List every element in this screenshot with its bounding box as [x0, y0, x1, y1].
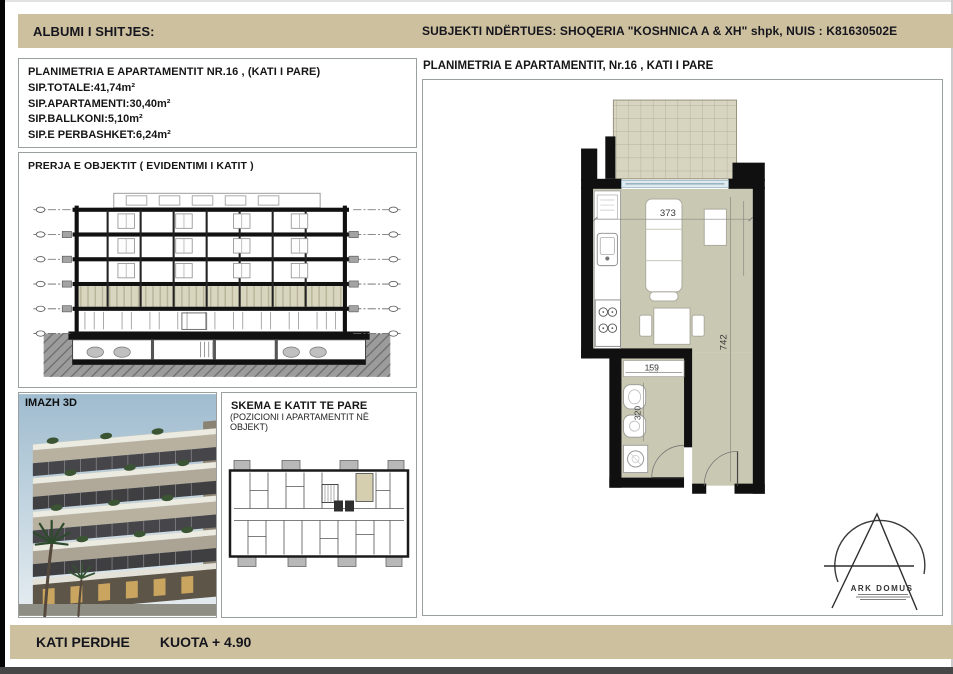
hall-floor	[692, 352, 753, 485]
building-section-title: PRERJA E OBJEKTIT ( EVIDENTIMI I KATIT )	[19, 153, 416, 175]
dim-bath-height-label: 320	[633, 406, 643, 421]
balcony	[613, 100, 736, 179]
page-edge-bottom	[0, 667, 953, 674]
render-3d-label: IMAZH 3D	[25, 397, 77, 409]
logo-underlines	[856, 595, 910, 600]
apartment-info-title: PLANIMETRIA E APARTAMENTIT NR.16 , (KATI…	[19, 59, 416, 81]
logo-text: ARK DOMUS	[851, 584, 914, 593]
kitchen-stove	[595, 300, 620, 346]
dim-width-label: 373	[660, 208, 676, 219]
schema-highlighted-apartment	[356, 474, 373, 502]
footer-elevation-label: KUOTA + 4.90	[160, 634, 251, 650]
foundation	[44, 331, 391, 376]
schema-elevator-2	[345, 501, 354, 512]
sip-perbashket: SIP.E PERBASHKET:6,24m²	[19, 128, 416, 144]
album-page: ALBUMI I SHITJES: SUBJEKTI NDËRTUES: SHO…	[0, 0, 953, 674]
footer-floor-label: KATI PERDHE	[36, 634, 130, 650]
sip-ballkoni: SIP.BALLKONI:5,10m²	[19, 112, 416, 128]
apartment-info-panel: PLANIMETRIA E APARTAMENTIT NR.16 , (KATI…	[18, 58, 417, 148]
header-album-title: ALBUMI I SHITJES:	[18, 14, 417, 48]
dining-table	[654, 308, 690, 344]
building-body	[73, 206, 349, 332]
floor-schema-title: SKEMA E KATIT TE PARE	[222, 393, 416, 412]
footer-band: KATI PERDHE KUOTA + 4.90	[10, 625, 953, 659]
building-facade	[33, 420, 216, 612]
schema-elevator-1	[334, 501, 343, 512]
header-builder-info: SUBJEKTI NDËRTUES: SHOQERIA "KOSHNICA A …	[412, 14, 953, 48]
building-3d-render	[19, 393, 216, 617]
page-edge-top	[0, 0, 953, 2]
dim-bath-width-label: 159	[645, 363, 660, 373]
ark-domus-logo: ARK DOMUS	[820, 504, 936, 616]
header-album-title-text: ALBUMI I SHITJES:	[33, 24, 155, 39]
kitchen	[594, 191, 620, 348]
page-edge-left	[0, 0, 5, 674]
floor-plan-title: PLANIMETRIA E APARTAMENTIT, Nr.16 , KATI…	[423, 60, 713, 72]
floor-plan-drawing: 373 742 159 320	[579, 92, 781, 521]
floor-schema-subtitle: (POZICIONI I APARTAMENTIT NË OBJEKT)	[222, 412, 416, 432]
floor-schema-panel: SKEMA E KATIT TE PARE (POZICIONI I APART…	[221, 392, 417, 618]
chair	[640, 315, 652, 336]
side-table	[704, 209, 726, 245]
toilet	[623, 385, 645, 409]
render-3d-panel: IMAZH 3D	[18, 392, 217, 618]
floor-schema-drawing	[224, 455, 414, 573]
header-builder-info-text: SUBJEKTI NDËRTUES: SHOQERIA "KOSHNICA A …	[422, 24, 897, 38]
dim-height-label: 742	[718, 334, 729, 350]
sip-totale: SIP.TOTALE:41,74m²	[19, 81, 416, 97]
building-section-panel: PRERJA E OBJEKTIT ( EVIDENTIMI I KATIT )	[18, 152, 417, 388]
sip-apartamenti: SIP.APARTAMENTI:30,40m²	[19, 97, 416, 113]
chair	[692, 315, 704, 336]
building-section-drawing	[27, 185, 409, 381]
roof-level	[114, 193, 320, 207]
schema-outline	[230, 471, 408, 557]
